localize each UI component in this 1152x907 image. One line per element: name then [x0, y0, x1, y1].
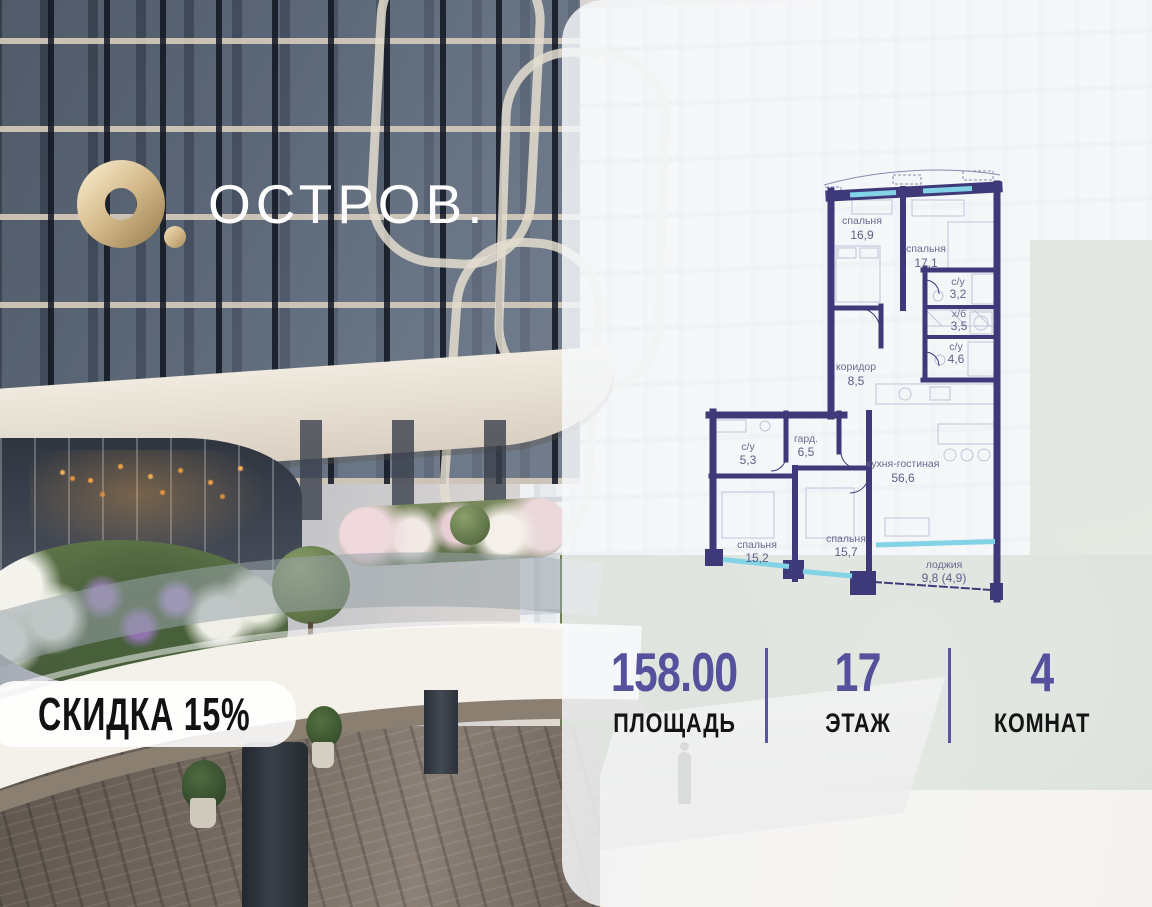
room-label: с/у [741, 441, 755, 453]
stat-floor: 17 ЭТАЖ [768, 645, 949, 745]
room-label: коридор [836, 361, 876, 373]
room-area: 6,5 [798, 445, 815, 459]
room-area: 4,6 [948, 352, 965, 366]
room-label: спальня [842, 215, 882, 227]
stat-rooms-value: 4 [1030, 645, 1053, 700]
room-label: гард. [794, 433, 818, 445]
discount-badge-text: СКИДКА 15% [31, 687, 250, 741]
stat-floor-value: 17 [835, 645, 881, 700]
room-area: 3,2 [950, 287, 967, 301]
room-area: 9,8 (4,9) [922, 571, 967, 585]
room-label: спальня [906, 243, 946, 255]
floor-plan: спальня 16,9 спальня 17,1 с/у 3,2 х/б 3,… [688, 152, 1020, 630]
facade-curve-line [824, 170, 1000, 185]
stat-area-label: ПЛОЩАДЬ [613, 710, 735, 737]
plant-pot [312, 742, 334, 768]
room-area: 56,6 [891, 471, 915, 485]
room-label: спальня [826, 533, 866, 545]
topiary-trunk [308, 622, 313, 648]
discount-badge: СКИДКА 15% [0, 681, 296, 747]
brand-name: ОСТРОВ. [208, 172, 488, 236]
room-label: кухня-гостиная [867, 458, 940, 470]
topiary-tree [272, 546, 350, 624]
room-area: 15,2 [745, 551, 769, 565]
dark-column-small [424, 690, 458, 774]
plant-pot [190, 798, 216, 828]
apartment-stats: 158.00 ПЛОЩАДЬ 17 ЭТАЖ 4 КОМНАТ [584, 645, 1132, 745]
pendant-lights [60, 470, 65, 475]
brand-logo: ОСТРОВ. [70, 148, 510, 268]
room-area: 5,3 [740, 453, 757, 467]
stat-rooms: 4 КОМНАТ [951, 645, 1132, 745]
room-area: 16,9 [850, 228, 874, 242]
stat-floor-label: ЭТАЖ [825, 710, 891, 737]
room-area: 8,5 [848, 374, 865, 388]
topiary-tree-small [450, 505, 490, 545]
stat-area-value: 158.00 [611, 645, 738, 700]
room-area: 17,1 [914, 256, 938, 270]
stat-area: 158.00 ПЛОЩАДЬ [584, 645, 765, 745]
room-label: спальня [737, 539, 777, 551]
room-label: лоджия [926, 559, 963, 571]
room-area: 15,7 [834, 545, 858, 559]
room-area: 3,5 [951, 319, 968, 333]
dark-column [242, 742, 308, 907]
stat-rooms-label: КОМНАТ [994, 710, 1090, 737]
